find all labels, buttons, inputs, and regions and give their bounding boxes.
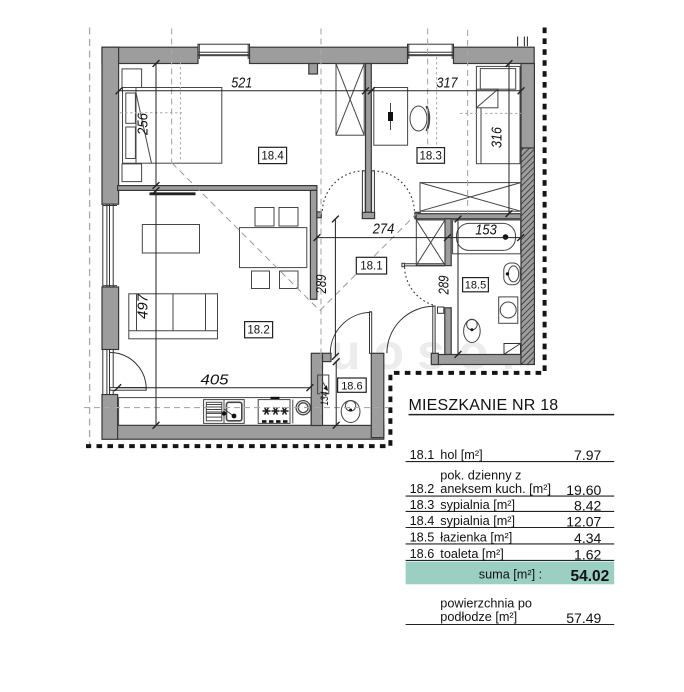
- svg-text:hol [m²]: hol [m²]: [440, 448, 482, 462]
- svg-text:316: 316: [489, 126, 506, 148]
- svg-text:MIESZKANIE NR 18: MIESZKANIE NR 18: [409, 397, 559, 414]
- svg-text:19.60: 19.60: [566, 482, 601, 498]
- svg-text:256: 256: [135, 112, 152, 135]
- svg-text:12.07: 12.07: [566, 514, 601, 530]
- svg-text:pok. dzienny z: pok. dzienny z: [440, 469, 521, 483]
- svg-text:4.34: 4.34: [574, 530, 601, 546]
- svg-text:18.6: 18.6: [410, 547, 435, 561]
- svg-text:521: 521: [231, 75, 252, 92]
- svg-text:134: 134: [319, 392, 331, 406]
- svg-text:274: 274: [372, 221, 394, 238]
- svg-text:sypialnia [m²]: sypialnia [m²]: [440, 514, 515, 528]
- svg-text:łazienka [m²]: łazienka [m²]: [440, 530, 512, 544]
- svg-text:toaleta [m²]: toaleta [m²]: [440, 547, 503, 561]
- svg-text:powierzchnia po: powierzchnia po: [440, 596, 532, 610]
- svg-text:18.2: 18.2: [247, 325, 269, 337]
- svg-text:podłodze [m²]: podłodze [m²]: [440, 610, 517, 624]
- svg-text:18.6: 18.6: [341, 380, 362, 392]
- svg-text:289: 289: [436, 275, 453, 295]
- svg-text:18.1: 18.1: [360, 261, 382, 273]
- svg-text:18.2: 18.2: [410, 482, 435, 496]
- svg-text:8.42: 8.42: [574, 498, 601, 514]
- svg-text:497: 497: [135, 293, 152, 319]
- svg-text:18.1: 18.1: [410, 448, 435, 462]
- svg-text:18.3: 18.3: [420, 151, 442, 163]
- svg-text:289: 289: [313, 274, 330, 294]
- svg-text:18.5: 18.5: [465, 280, 486, 292]
- svg-text:suma [m²] :: suma [m²] :: [479, 568, 542, 582]
- svg-text:405: 405: [201, 372, 230, 389]
- svg-text:18.3: 18.3: [410, 498, 435, 512]
- svg-text:sypialnia [m²]: sypialnia [m²]: [440, 498, 515, 512]
- svg-text:aneksem kuch. [m²]: aneksem kuch. [m²]: [440, 482, 551, 496]
- svg-text:57.49: 57.49: [566, 610, 601, 626]
- svg-text:1.62: 1.62: [574, 547, 601, 563]
- svg-text:18.4: 18.4: [410, 514, 435, 528]
- svg-text:153: 153: [475, 222, 497, 239]
- svg-text:7.97: 7.97: [574, 447, 601, 463]
- svg-text:54.02: 54.02: [571, 568, 610, 585]
- svg-text:18.4: 18.4: [261, 150, 284, 162]
- svg-text:317: 317: [437, 75, 459, 92]
- svg-text:18.5: 18.5: [410, 530, 435, 544]
